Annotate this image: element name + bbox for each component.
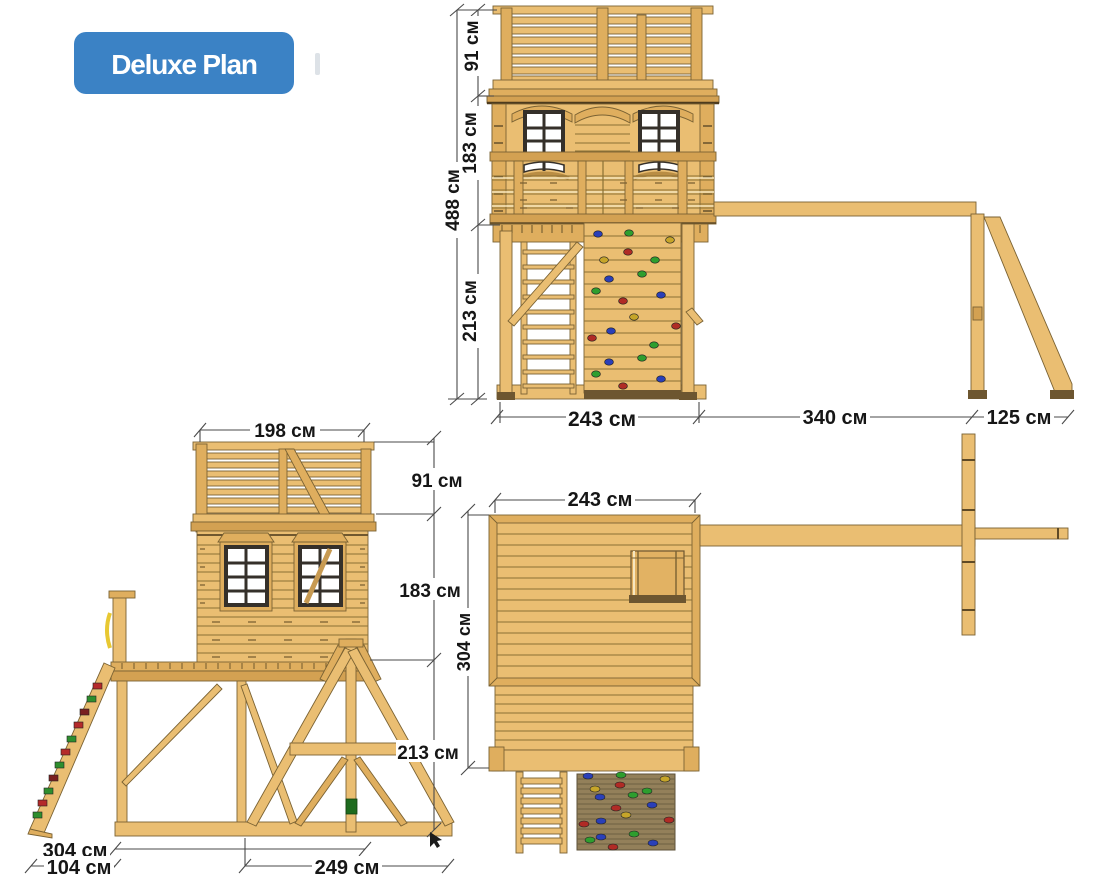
svg-text:91 см: 91 см (462, 20, 483, 71)
svg-text:213 см: 213 см (397, 743, 459, 764)
svg-text:183 см: 183 см (460, 112, 481, 174)
svg-text:304 см: 304 см (454, 613, 474, 671)
svg-text:91 см: 91 см (411, 471, 462, 492)
svg-text:104 см: 104 см (47, 857, 112, 879)
svg-text:488 см: 488 см (443, 169, 464, 231)
svg-text:Deluxe Plan: Deluxe Plan (111, 49, 257, 80)
svg-text:183 см: 183 см (399, 581, 461, 602)
svg-text:243 см: 243 см (568, 408, 636, 431)
svg-text:198 см: 198 см (254, 421, 316, 442)
svg-text:213 см: 213 см (460, 280, 481, 342)
svg-text:249 см: 249 см (315, 857, 380, 879)
svg-text:125 см: 125 см (987, 407, 1052, 429)
svg-text:243 см: 243 см (568, 489, 633, 511)
svg-text:340 см: 340 см (803, 407, 868, 429)
